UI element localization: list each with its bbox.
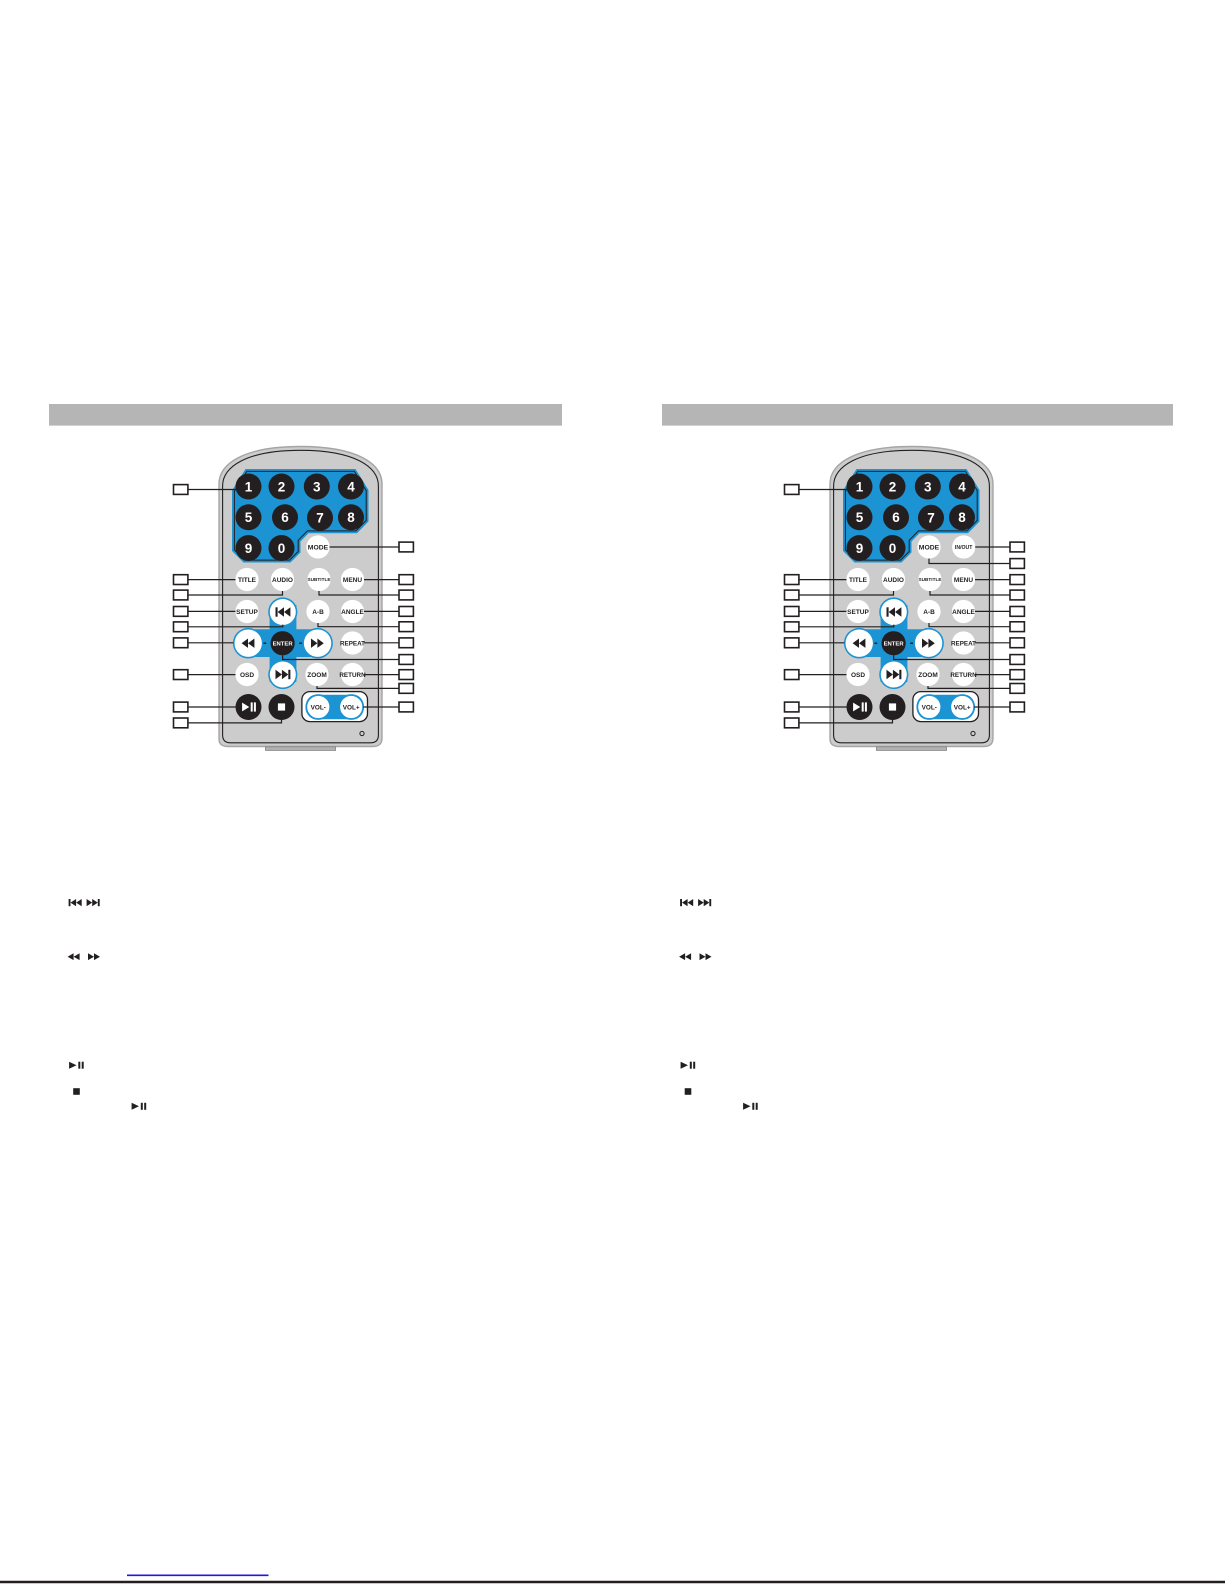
svg-text:OSD: OSD	[240, 672, 254, 679]
svg-text:3: 3	[313, 479, 321, 494]
svg-text:1: 1	[856, 479, 864, 494]
svg-text:TITLE: TITLE	[238, 577, 257, 584]
svg-text:A-B: A-B	[923, 609, 935, 616]
svg-text:3: 3	[924, 479, 932, 494]
svg-text:IN/OUT: IN/OUT	[955, 545, 973, 551]
svg-text:MODE: MODE	[308, 544, 329, 551]
svg-text:OSD: OSD	[851, 672, 865, 679]
svg-text:2: 2	[889, 479, 897, 494]
svg-text:RETURN: RETURN	[339, 672, 366, 679]
svg-text:5: 5	[856, 510, 864, 525]
svg-text:ENTER: ENTER	[273, 641, 294, 647]
svg-text:7: 7	[316, 511, 324, 526]
svg-text:ENTER: ENTER	[884, 641, 905, 647]
svg-text:SETUP: SETUP	[236, 609, 258, 616]
svg-text:0: 0	[889, 541, 897, 556]
svg-text:6: 6	[892, 510, 900, 525]
svg-text:0: 0	[278, 541, 286, 556]
svg-text:MENU: MENU	[343, 577, 362, 584]
svg-text:RETURN: RETURN	[950, 672, 977, 679]
svg-text:7: 7	[927, 511, 935, 526]
svg-text:ANGLE: ANGLE	[952, 609, 975, 616]
svg-text:REPEAT: REPEAT	[340, 640, 365, 647]
svg-text:5: 5	[245, 510, 253, 525]
svg-text:AUDIO: AUDIO	[883, 577, 904, 584]
svg-text:SUBTITLE: SUBTITLE	[308, 577, 331, 582]
svg-text:VOL+: VOL+	[343, 704, 360, 711]
svg-text:ANGLE: ANGLE	[341, 609, 364, 616]
svg-text:9: 9	[245, 541, 253, 556]
svg-text:REPEAT: REPEAT	[951, 640, 976, 647]
svg-text:AUDIO: AUDIO	[272, 577, 293, 584]
svg-text:MENU: MENU	[954, 577, 973, 584]
svg-text:4: 4	[958, 479, 966, 494]
svg-text:6: 6	[281, 510, 289, 525]
svg-text:8: 8	[958, 510, 966, 525]
svg-text:9: 9	[856, 541, 864, 556]
svg-text:8: 8	[347, 510, 355, 525]
svg-text:ZOOM: ZOOM	[918, 672, 938, 679]
svg-text:1: 1	[245, 479, 253, 494]
svg-text:ZOOM: ZOOM	[307, 672, 327, 679]
svg-text:MODE: MODE	[919, 544, 940, 551]
svg-text:VOL-: VOL-	[311, 704, 326, 711]
svg-text:VOL+: VOL+	[954, 704, 971, 711]
svg-text:A-B: A-B	[312, 609, 324, 616]
svg-text:TITLE: TITLE	[849, 577, 868, 584]
svg-text:4: 4	[347, 479, 355, 494]
svg-text:SETUP: SETUP	[847, 609, 869, 616]
svg-text:2: 2	[278, 479, 286, 494]
svg-text:VOL-: VOL-	[922, 704, 937, 711]
svg-text:SUBTITLE: SUBTITLE	[919, 577, 942, 582]
